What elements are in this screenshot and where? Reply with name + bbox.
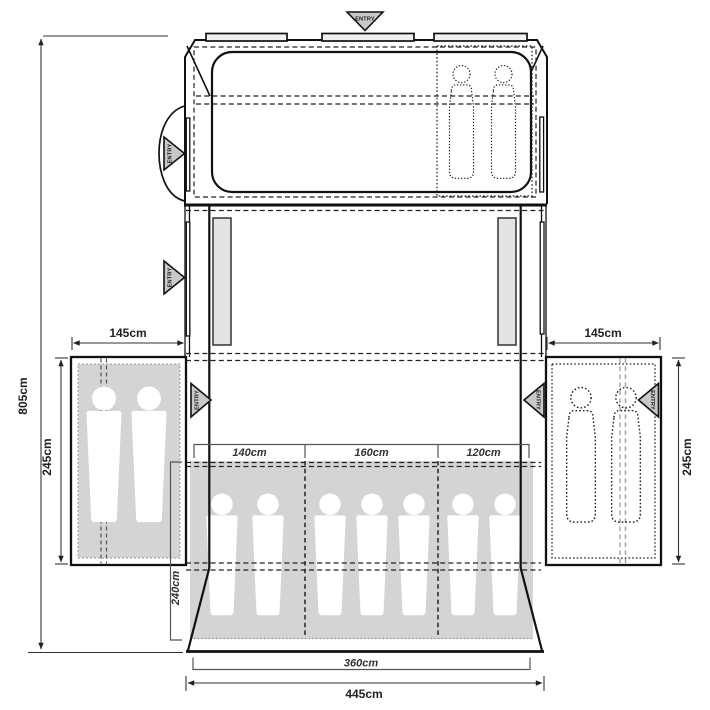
roof-vent-bar [206,34,287,42]
entry-label: ENTRY [168,268,174,288]
door-zip-bar [186,118,190,191]
entry-marker-left-annex-door: ENTRY [191,384,211,418]
dimension-right-annex-width: 145cm [547,326,660,350]
door-zip-bar [540,117,544,192]
left-annex-depth-label: 245cm [40,438,54,475]
entry-label: ENTRY [649,390,655,410]
right-annex-depth-label: 245cm [680,438,694,475]
dimension-left-annex-depth: 245cm [40,358,68,564]
right-annex [546,357,661,565]
bedroom-right-width-label: 120cm [466,447,500,459]
entry-marker-living-side: ENTRY [164,261,185,294]
window-panel-right [498,218,516,345]
overall-length-label: 805cm [16,377,30,414]
tent-floorplan-page: ENTRY ENTRY ENTRY ENTRY ENTRY ENTRY 8 [0,0,710,710]
roof-vent-bar [322,34,414,42]
window-panel-left [213,218,231,345]
entry-label: ENTRY [195,390,201,410]
entry-label: ENTRY [168,144,174,164]
right-annex-width-label: 145cm [584,326,621,340]
living-area-section [184,205,547,361]
bedroom-left-width-label: 140cm [232,447,266,459]
front-bedroom-section [159,34,547,205]
entry-marker-front: ENTRY [347,12,383,31]
inner-bedroom-outline [212,52,531,192]
corner-guyline-left [187,46,210,96]
right-annex-outline [546,357,661,565]
door-zip-bar [186,222,190,336]
rear-bedroom-depth-label: 240cm [170,571,182,606]
bedroom-middle-width-label: 160cm [354,447,388,459]
overall-width-label: 445cm [345,687,382,701]
rear-bedroom-section [186,205,544,652]
entry-label: ENTRY [355,17,375,23]
door-zip-bar [540,222,544,334]
dimension-overall-width: 445cm [186,676,544,701]
inner-width-label: 360cm [344,658,378,670]
dimension-rear-bedroom-widths: 140cm 160cm 120cm [194,445,529,460]
left-annex [71,357,186,565]
dimension-right-annex-depth: 245cm [672,358,694,564]
roof-vent-bar [434,34,527,42]
entry-label: ENTRY [535,390,541,410]
dimension-left-annex-width: 145cm [72,326,185,350]
left-annex-width-label: 145cm [109,326,146,340]
dimension-inner-width: 360cm [193,658,530,670]
entry-marker-front-side: ENTRY [164,137,185,170]
tent-floorplan-diagram: ENTRY ENTRY ENTRY ENTRY ENTRY ENTRY 8 [0,0,710,710]
entry-marker-right-annex-door: ENTRY [524,384,544,418]
